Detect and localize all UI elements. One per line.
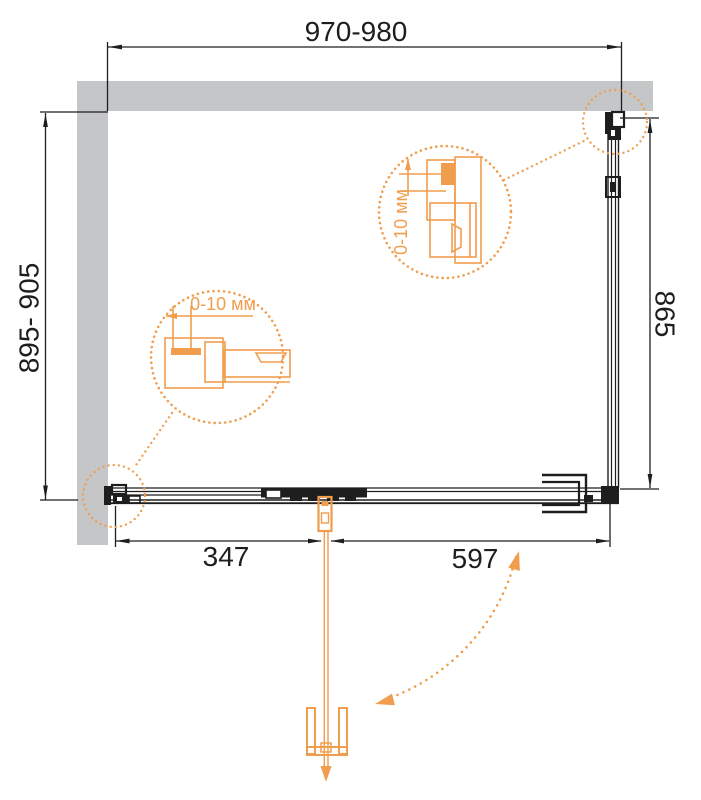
arrowhead-top — [43, 114, 48, 128]
roller — [345, 498, 356, 502]
dimension-label-bottom-fixed: 347 — [203, 541, 250, 572]
shower-enclosure-technical-drawing: 970-980 895- 905 865 347 597 — [0, 0, 701, 800]
hinge-detail — [322, 513, 329, 523]
detail-glass-clip — [452, 224, 461, 252]
detail-callouts — [83, 90, 647, 527]
detail-label-right: 0-10 мм — [391, 189, 411, 255]
door-track-hardware — [261, 489, 367, 502]
profile-slot — [611, 130, 615, 136]
profile-channel — [112, 485, 126, 494]
swing-arc-dotted — [381, 557, 516, 701]
arrowhead-center-left — [308, 539, 322, 544]
detail-profile-body — [455, 157, 481, 263]
dimension-label-bottom-door: 597 — [452, 543, 499, 574]
glass-clamp-core — [610, 182, 616, 192]
profile-bar — [104, 486, 111, 505]
door-swing-arc — [374, 549, 525, 709]
wall-left — [77, 81, 108, 545]
detail-hatch — [441, 163, 455, 185]
roller — [290, 498, 302, 502]
arrowhead-top — [648, 120, 653, 134]
detail-profile-rail — [430, 203, 476, 257]
dimension-label-left-height: 895- 905 — [13, 263, 44, 374]
arrowhead-right — [596, 539, 610, 544]
door-edge-arrow — [321, 766, 332, 782]
callout-leader-right — [504, 140, 586, 180]
arrowhead-left — [116, 539, 130, 544]
wall-top — [77, 81, 653, 111]
detail-drawing-left — [165, 306, 290, 388]
detail-profile-insert — [205, 342, 225, 382]
catch-profile-inner — [542, 482, 579, 505]
detail-hatch — [171, 348, 201, 355]
swing-arrow-up — [508, 549, 525, 570]
arrowhead-left — [109, 45, 123, 50]
detail-label-left: 0-10 мм — [190, 294, 256, 314]
detail-dim-arrow — [405, 158, 411, 170]
swing-arrow-left — [374, 694, 395, 710]
dimension-label-top-width: 970-980 — [305, 16, 408, 47]
arrowhead-center-right — [331, 539, 345, 544]
profile-slot — [117, 497, 122, 501]
detail-drawing-right — [399, 157, 481, 263]
profile-channel — [612, 112, 624, 127]
glass-panel-right — [606, 134, 620, 488]
corner-block — [601, 486, 619, 503]
detail-glass-clip — [256, 353, 286, 362]
arrowhead-right — [607, 45, 621, 50]
hinge-detail — [322, 501, 329, 506]
callout-leader-left — [134, 413, 172, 468]
arrowhead-bottom — [648, 474, 653, 488]
arrowhead-bottom — [43, 486, 48, 500]
track-bracket — [266, 490, 281, 498]
dimension-label-right-height: 865 — [650, 291, 681, 338]
